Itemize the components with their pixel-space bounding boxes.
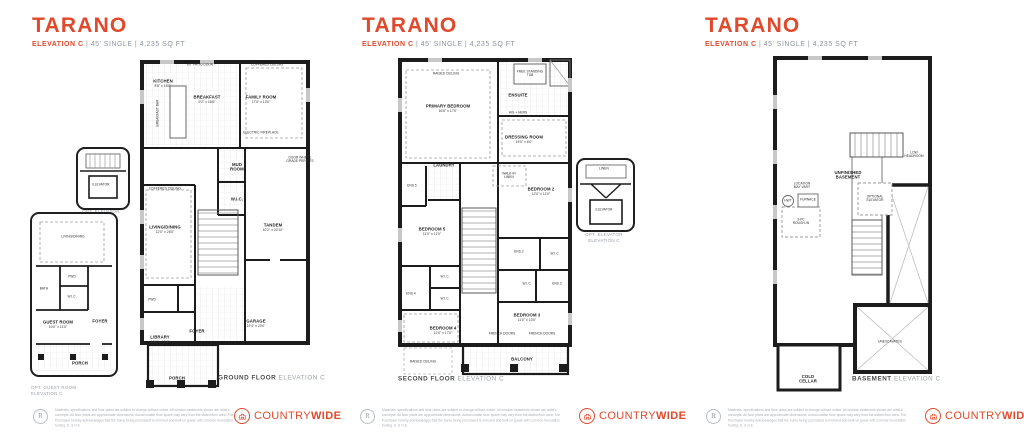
room-label-family-room: FAMILY ROOM17'0" x 13'0" [246, 95, 277, 104]
countrywide-wordmark: COUNTRYWIDE [254, 410, 341, 422]
basement-plan-drawing [768, 55, 938, 400]
second-floor-plan-drawing [398, 58, 573, 393]
room-label-wic-a: W.I.C. [550, 252, 559, 256]
room-label-elevator-ground: ELEVATOR [93, 183, 110, 187]
inset-label-porch: PORCH [72, 361, 88, 366]
registered-trademark-icon-2: R [360, 409, 375, 424]
note-freestanding-tub: FREE STANDING TUB [517, 70, 543, 78]
room-label-bedroom4: BEDROOM 412'0" x 17'0" [430, 326, 457, 335]
inset-label-foyer: FOYER [92, 319, 107, 324]
room-label-porch: PORCH [169, 376, 185, 381]
inset-label-living-dining: LIVING/DINING [61, 235, 84, 239]
note-location-may-vary: LOCATION MAY VARY [794, 182, 811, 190]
page-subtitle: ELEVATION C | 45' SINGLE | 4,235 SQ FT [32, 41, 185, 48]
panel-basement-header: TARANO ELEVATION C | 45' SINGLE | 4,235 … [705, 14, 858, 48]
room-label-unexcavated: UNEXCAVATED [878, 340, 902, 344]
floorplan-sheet: TARANO ELEVATION C | 45' SINGLE | 4,235 … [0, 0, 1024, 442]
room-label-wic-b: W.I.C. [522, 282, 531, 286]
subtitle-specs: | 45' SINGLE | 4,235 SQ FT [84, 41, 186, 48]
page-title-2: TARANO [362, 14, 515, 38]
countrywide-logo-1: COUNTRYWIDE [234, 408, 341, 424]
room-label-dressing-room: DRESSING ROOM15'0" x 6'0" [505, 135, 543, 144]
note-his-hers: HIS + HERS [509, 111, 527, 115]
inset-label-bath: BATH [40, 287, 49, 291]
countrywide-building-icon-3 [925, 408, 941, 424]
room-label-kitchen: KITCHEN8'6" x 16'6" [153, 79, 173, 88]
room-label-primary-bedroom: PRIMARY BEDROOM16'6" x 17'0" [426, 104, 470, 113]
room-label-ens4: ENS.4 [406, 292, 416, 296]
room-label-foyer: FOYER [189, 329, 204, 334]
room-label-wic: W.I.C. [231, 197, 243, 202]
room-label-unfinished-basement: UNFINISHED BASEMENT [834, 171, 861, 181]
room-label-bedroom3: BEDROOM 311'0" x 13'0" [514, 313, 541, 322]
inset-opt-elevator-ground [76, 147, 130, 210]
page-subtitle-3: ELEVATION C | 45' SINGLE | 4,235 SQ FT [705, 41, 858, 48]
note-raised-ceiling-2: RAISED CEILING [410, 360, 436, 364]
countrywide-wordmark-3: COUNTRYWIDE [945, 410, 1024, 422]
note-coffered-ceiling-living: COFFERED CEILING [149, 187, 181, 191]
room-label-ens5: ENS.5 [407, 184, 417, 188]
room-label-tandem: TANDEM10'2" x 20'10" [263, 223, 284, 232]
room-label-wic-d: W.I.C. [440, 297, 449, 301]
room-label-elevator-second: ELEVATOR [596, 208, 613, 212]
countrywide-logo-2: COUNTRYWIDE [579, 408, 686, 424]
note-raised-ceiling-primary: RAISED CEILING [433, 72, 459, 76]
note-walkin-linen: WALK-IN LINEN [502, 172, 516, 180]
room-label-breakfast: BREAKFAST9'2" x 16'6" [194, 95, 221, 104]
inset-label-pwd: PWD [68, 275, 76, 279]
inset-label-guest-room: GUEST ROOM10'0" x 11'0" [43, 320, 73, 329]
room-label-bedroom2: BEDROOM 212'0" x 11'0" [528, 187, 555, 196]
disclaimer-text-3: Materials, specifications and floor plan… [728, 408, 907, 429]
note-optional-elevator: OPTIONAL ELEVATOR [867, 195, 884, 203]
room-label-balcony: BALCONY [511, 357, 533, 362]
page-subtitle-2: ELEVATION C | 45' SINGLE | 4,235 SQ FT [362, 41, 515, 48]
note-furnace: FURNACE [800, 198, 816, 202]
room-label-bedroom5: BEDROOM 511'0" x 11'0" [419, 227, 446, 236]
note-3pc-roughin: 3-PC ROUGH-IN [793, 218, 810, 226]
registered-trademark-icon-3: R [706, 409, 721, 424]
room-label-pwd: PWD [148, 298, 156, 302]
countrywide-wordmark-2: COUNTRYWIDE [599, 410, 686, 422]
room-label-ens3: ENS.3 [552, 282, 562, 286]
note-low-headroom: LOW HEADROOM [904, 151, 923, 159]
room-label-library: LIBRARY10'0" x 11'0" [150, 335, 169, 344]
room-label-garage: GARAGE19'4" x 20'0" [246, 319, 265, 328]
ground-floor-caption: GROUND FLOOR ELEVATION C [218, 375, 325, 381]
room-label-cold-cellar: COLD CELLAR [799, 375, 817, 385]
panel-second-header: TARANO ELEVATION C | 45' SINGLE | 4,235 … [362, 14, 515, 48]
note-grade-door: DOOR WHERE GRADE PERMITS [286, 156, 313, 164]
page-title: TARANO [32, 14, 185, 38]
room-label-ens2: ENS.2 [514, 250, 524, 254]
disclaimer-text-1: Materials, specifications and floor plan… [55, 408, 234, 429]
second-floor-caption: SECOND FLOOR ELEVATION C [398, 376, 504, 382]
panel-ground-header: TARANO ELEVATION C | 45' SINGLE | 4,235 … [32, 14, 185, 48]
inset-elevator-drawing [78, 149, 128, 208]
room-label-laundry: LAUNDRY [433, 163, 454, 168]
inset-caption-opt-guest-room: OPT. GUEST ROOM ELEVATION C [31, 385, 76, 397]
inset-caption-opt-elevator-second: OPT. ELEVATOR ELEVATION C [585, 232, 622, 244]
note-patio-door: 8'0" PATIO DOOR [187, 63, 214, 67]
countrywide-building-icon [234, 408, 250, 424]
room-label-ensuite: ENSUITE [508, 93, 527, 98]
note-french-doors-1: FRENCH DOORS [489, 332, 516, 336]
note-french-doors-2: FRENCH DOORS [529, 332, 556, 336]
inset-label-linen: LINEN [599, 167, 609, 171]
registered-trademark-icon: R [33, 409, 48, 424]
countrywide-building-icon-2 [579, 408, 595, 424]
note-electric-fireplace: ELECTRIC FIREPLACE [243, 131, 278, 135]
note-hwt: HWT [784, 199, 791, 203]
disclaimer-text-2: Materials, specifications and floor plan… [382, 408, 561, 429]
inset-label-wic: W.I.C. [67, 295, 76, 299]
countrywide-logo-3: COUNTRYWIDE [925, 408, 1024, 424]
room-label-living-dining: LIVING/DINING12'0" x 26'0" [149, 225, 181, 234]
room-label-wic-c: W.I.C. [440, 275, 449, 279]
note-breakfast-bar: BREAKFAST BAR [156, 100, 160, 127]
room-label-mud-room: MUD ROOM [230, 163, 244, 173]
subtitle-elevation: ELEVATION C [32, 41, 84, 48]
page-title-3: TARANO [705, 14, 858, 38]
basement-caption: BASEMENT ELEVATION C [852, 376, 941, 382]
note-coffered-ceiling-family: COFFERED CEILING [251, 63, 283, 67]
